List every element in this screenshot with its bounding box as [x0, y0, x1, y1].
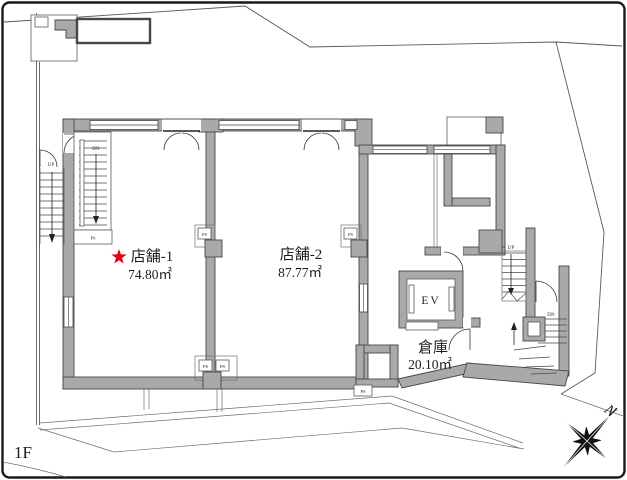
window-segment — [373, 146, 427, 154]
floor-label: 1F — [14, 443, 32, 462]
shop2-area: 87.77㎡ — [278, 265, 322, 280]
ps-label: PS — [203, 364, 209, 369]
ps-shaft: PS — [354, 385, 372, 396]
window-segment — [90, 121, 158, 130]
stair-interior-left: DN — [74, 132, 111, 230]
floor-plan-drawing: EV — [0, 0, 627, 480]
ps-label: PS — [360, 389, 366, 394]
stair-down-label: DN — [547, 313, 555, 318]
ps-shaft: PS — [74, 230, 112, 244]
window-segment — [434, 146, 490, 154]
shop2-name: 店舗-2 — [280, 246, 323, 263]
ps-label: PS — [220, 364, 226, 369]
shop1-area: 74.80㎡ — [128, 267, 172, 282]
window-segment — [360, 284, 368, 312]
canopy-northeast — [447, 117, 503, 147]
ps-label: PS — [348, 232, 354, 237]
floor-plan-page: EV — [0, 0, 627, 480]
window-segment — [219, 121, 299, 130]
window-segment — [345, 121, 357, 130]
stair-up-label: UP — [48, 163, 55, 168]
elevator-label: EV — [421, 295, 440, 307]
ps-label: PS — [202, 232, 208, 237]
warehouse-area: 20.10㎡ — [408, 357, 452, 372]
stair-down-label: DN — [92, 147, 100, 152]
window-segment — [64, 297, 73, 327]
stair-up-label: UP — [508, 246, 515, 251]
ps-label: PS — [90, 236, 96, 241]
warehouse-name: 倉庫 — [418, 339, 448, 356]
shop1-name: 店舗-1 — [131, 248, 174, 265]
elevator-shaft: EV — [399, 271, 463, 330]
